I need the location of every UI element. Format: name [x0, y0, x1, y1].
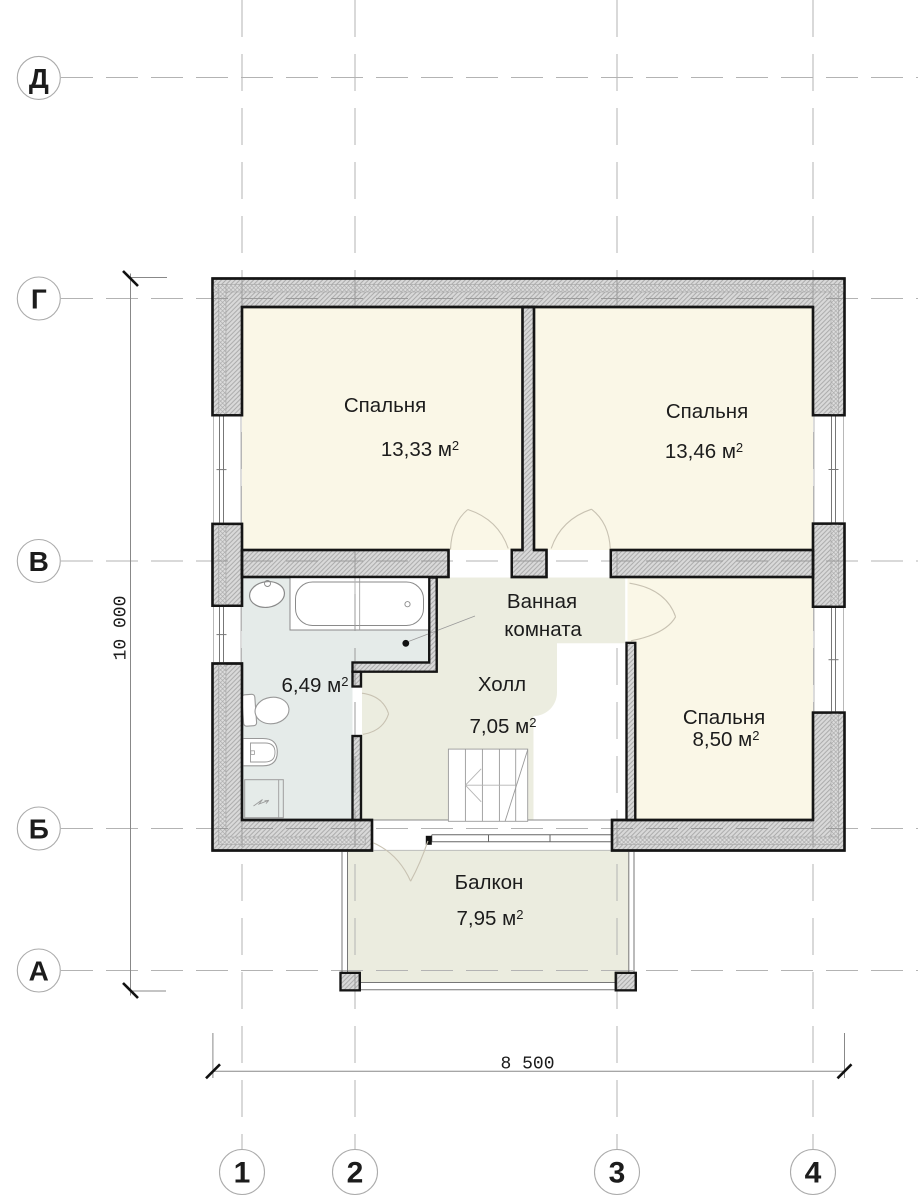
svg-text:Балкон: Балкон: [455, 871, 524, 894]
svg-text:Б: Б: [29, 814, 49, 845]
svg-text:6,49 м2: 6,49 м2: [282, 674, 349, 697]
svg-text:Спальня: Спальня: [666, 400, 748, 423]
svg-text:13,33 м2: 13,33 м2: [381, 438, 459, 461]
svg-text:7,95 м2: 7,95 м2: [457, 907, 524, 930]
svg-text:7,05 м2: 7,05 м2: [470, 715, 537, 738]
svg-text:13,46 м2: 13,46 м2: [665, 440, 743, 463]
svg-text:Спальня: Спальня: [344, 394, 426, 417]
svg-text:В: В: [29, 546, 49, 577]
svg-text:Холл: Холл: [478, 673, 526, 696]
svg-text:10 000: 10 000: [112, 596, 132, 661]
svg-text:8 500: 8 500: [500, 1055, 554, 1075]
svg-text:4: 4: [805, 1157, 822, 1190]
svg-text:А: А: [29, 956, 49, 987]
svg-text:комната: комната: [504, 618, 582, 641]
svg-text:8,50 м2: 8,50 м2: [693, 728, 760, 751]
svg-text:2: 2: [347, 1157, 364, 1190]
svg-text:Д: Д: [29, 63, 49, 94]
svg-text:Г: Г: [31, 284, 47, 315]
svg-text:3: 3: [609, 1157, 626, 1190]
svg-text:Ванная: Ванная: [507, 590, 577, 613]
svg-text:1: 1: [234, 1157, 251, 1190]
svg-text:Спальня: Спальня: [683, 706, 765, 729]
